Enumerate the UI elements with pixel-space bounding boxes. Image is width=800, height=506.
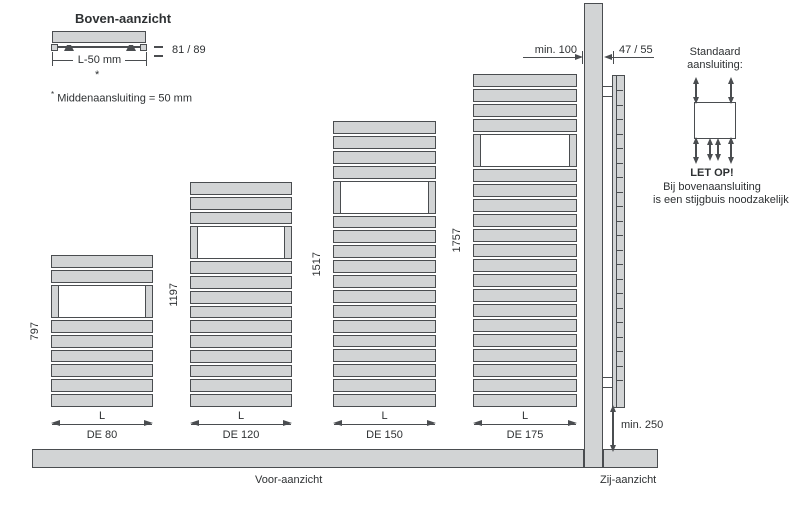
side-slat-tick xyxy=(617,293,623,294)
radiator-slat xyxy=(473,289,577,302)
side-slat-tick xyxy=(617,351,623,352)
radiator-slat xyxy=(190,182,292,195)
side-view-caption: Zij-aanzicht xyxy=(600,474,656,487)
wall xyxy=(584,3,603,468)
radiator-slat xyxy=(190,379,292,392)
radiator-de-80: 797 L DE 80 xyxy=(51,255,153,407)
radiator-slat xyxy=(190,306,292,319)
radiator-slat xyxy=(51,350,153,363)
side-slat-tick xyxy=(617,337,623,338)
mounting-bracket-icon xyxy=(51,44,58,51)
radiator-slat xyxy=(473,274,577,287)
towel-opening-gap xyxy=(198,227,284,258)
radiator-slat xyxy=(333,245,436,258)
towel-opening-gap xyxy=(59,286,145,317)
side-slat-tick xyxy=(617,206,623,207)
warning-line1: Bij bovenaansluiting xyxy=(653,181,771,194)
footnote: * Middenaansluiting = 50 mm xyxy=(51,90,192,105)
radiator-slat xyxy=(190,276,292,289)
radiator-slat xyxy=(51,335,153,348)
towel-opening xyxy=(51,285,153,318)
radiator-slat xyxy=(473,199,577,212)
radiator-slat xyxy=(333,364,436,377)
towel-opening-gap xyxy=(481,135,569,166)
towel-opening xyxy=(333,181,436,214)
side-post xyxy=(333,182,341,213)
radiator-slat xyxy=(190,197,292,210)
radiator-slat xyxy=(51,320,153,333)
flow-arrow-icon xyxy=(695,142,697,159)
width-dimension-arrow-icon xyxy=(191,424,291,425)
towel-opening xyxy=(190,226,292,259)
width-dimension-arrow-icon xyxy=(52,424,152,425)
dimension-tick xyxy=(582,51,583,64)
clamp-icon xyxy=(64,45,74,51)
radiator-slat xyxy=(473,379,577,392)
clamp-icon xyxy=(126,45,136,51)
side-slat-tick xyxy=(617,322,623,323)
height-dimension-label: 1517 xyxy=(311,252,323,276)
radiator-slat xyxy=(51,270,153,283)
side-slat-tick xyxy=(617,308,623,309)
width-dimension-label: L xyxy=(51,410,153,422)
radiator-slat xyxy=(51,394,153,407)
radiator-slat xyxy=(473,169,577,182)
radiator-slat xyxy=(333,379,436,392)
top-view-panel xyxy=(52,31,146,43)
radiator-slat xyxy=(333,290,436,303)
radiator-dimension-diagram: Boven-aanzicht L-50 mm * 81 / 89 * Midde… xyxy=(0,0,800,506)
radiator-slat xyxy=(333,335,436,348)
radiator-slat xyxy=(473,244,577,257)
radiator-slat xyxy=(51,364,153,377)
side-post xyxy=(190,227,198,258)
width-dimension-label: L xyxy=(333,410,436,422)
radiator-slat xyxy=(333,230,436,243)
radiator-slat xyxy=(333,305,436,318)
radiator-slat xyxy=(333,260,436,273)
width-dimension-arrow-icon xyxy=(474,424,576,425)
footnote-marker: * xyxy=(51,90,54,99)
radiator-de-150: 1517 L DE 150 xyxy=(333,121,436,407)
floor-clearance-label: min. 250 xyxy=(621,419,663,432)
side-slat-tick xyxy=(617,177,623,178)
depth-dimension-label: 47 / 55 xyxy=(619,44,653,57)
height-dimension: 797 xyxy=(25,255,45,407)
radiator-slat xyxy=(333,349,436,362)
side-post xyxy=(51,286,59,317)
side-slat-tick xyxy=(617,119,623,120)
radiator-slat xyxy=(473,184,577,197)
model-label: DE 175 xyxy=(473,429,577,441)
radiator-slat xyxy=(473,214,577,227)
side-slat-tick xyxy=(617,235,623,236)
radiator-slat xyxy=(190,291,292,304)
height-dimension-label: 1757 xyxy=(451,228,463,252)
mounting-bracket-icon xyxy=(140,44,147,51)
side-post xyxy=(428,182,436,213)
front-view-caption: Voor-aanzicht xyxy=(255,474,322,487)
side-slat-tick xyxy=(617,90,623,91)
top-view-title: Boven-aanzicht xyxy=(75,12,171,27)
warning-title: LET OP! xyxy=(653,167,771,180)
height-dimension: 1197 xyxy=(164,182,184,407)
side-post xyxy=(473,135,481,166)
height-dimension: 1517 xyxy=(307,121,327,407)
flow-arrow-icon xyxy=(717,143,719,156)
side-slat-tick xyxy=(617,105,623,106)
depth-dimension-tick xyxy=(154,46,163,48)
side-slat-tick xyxy=(617,264,623,265)
side-slat-tick xyxy=(617,380,623,381)
towel-opening-gap xyxy=(341,182,428,213)
flow-arrow-icon xyxy=(709,143,711,156)
radiator-slat xyxy=(190,335,292,348)
top-view-width-dimension: L-50 mm xyxy=(52,54,147,67)
side-slat-tick xyxy=(617,148,623,149)
side-slat-tick xyxy=(617,221,623,222)
side-slat-tick xyxy=(617,192,623,193)
radiator-schematic xyxy=(694,102,736,139)
radiator-slat xyxy=(473,349,577,362)
warning-line2: is een stijgbuis noodzakelijk xyxy=(653,194,771,207)
footnote-marker: * xyxy=(95,69,99,82)
wall-clearance-label: min. 100 xyxy=(519,44,577,57)
radiator-de-175: 1757 L DE 175 xyxy=(473,74,577,407)
wall-bracket-icon xyxy=(603,377,612,388)
model-label: DE 150 xyxy=(333,429,436,441)
radiator-slat xyxy=(333,121,436,134)
radiator-slat xyxy=(473,304,577,317)
dimension-line xyxy=(523,57,576,58)
top-view-depth-dimension: 81 / 89 xyxy=(172,44,206,57)
side-slat-tick xyxy=(617,366,623,367)
radiator-slat xyxy=(333,151,436,164)
width-dimension-label: L xyxy=(190,410,292,422)
radiator-slat xyxy=(473,364,577,377)
radiator-slat xyxy=(333,166,436,179)
radiator-slat xyxy=(333,136,436,149)
radiator-slat xyxy=(473,104,577,117)
side-slat-tick xyxy=(617,134,623,135)
depth-dimension-tick xyxy=(154,55,163,57)
towel-opening xyxy=(473,134,577,167)
radiator-slat xyxy=(473,319,577,332)
floor-front xyxy=(32,449,584,468)
radiator-slat xyxy=(333,394,436,407)
height-dimension-label: 797 xyxy=(29,322,41,340)
connection-heading-line1: Standaard xyxy=(665,46,765,59)
side-slat-tick xyxy=(617,279,623,280)
flow-arrow-icon xyxy=(730,142,732,159)
side-view-radiator xyxy=(612,75,625,408)
radiator-slat xyxy=(190,320,292,333)
wall-bracket-icon xyxy=(603,86,612,97)
radiator-slat xyxy=(333,275,436,288)
radiator-slat xyxy=(473,89,577,102)
flow-arrow-icon xyxy=(695,82,697,99)
height-dimension-label: 1197 xyxy=(168,283,180,307)
width-dimension-label: L xyxy=(473,410,577,422)
radiator-slat xyxy=(190,261,292,274)
radiator-slat xyxy=(473,394,577,407)
radiator-slat xyxy=(51,255,153,268)
flow-arrow-icon xyxy=(730,82,732,99)
radiator-slat xyxy=(473,259,577,272)
radiator-slat xyxy=(190,350,292,363)
radiator-slat xyxy=(473,229,577,242)
radiator-profile-line xyxy=(616,76,617,407)
radiator-slat xyxy=(473,74,577,87)
side-post xyxy=(284,227,292,258)
radiator-slat xyxy=(190,212,292,225)
radiator-slat xyxy=(473,334,577,347)
dimension-line xyxy=(611,57,654,58)
dimension-tick xyxy=(613,51,614,64)
radiator-slat xyxy=(473,119,577,132)
connection-heading-line2: aansluiting: xyxy=(665,59,765,72)
side-slat-tick xyxy=(617,163,623,164)
width-dimension-arrow-icon xyxy=(334,424,435,425)
side-post xyxy=(145,286,153,317)
model-label: DE 80 xyxy=(51,429,153,441)
radiator-slat xyxy=(333,320,436,333)
radiator-slat xyxy=(190,394,292,407)
floor-clearance-arrow-icon xyxy=(612,410,614,447)
model-label: DE 120 xyxy=(190,429,292,441)
side-slat-tick xyxy=(617,250,623,251)
radiator-slat xyxy=(51,379,153,392)
radiator-slat xyxy=(190,365,292,378)
side-post xyxy=(569,135,577,166)
radiator-slat xyxy=(333,216,436,229)
radiator-de-120: 1197 L DE 120 xyxy=(190,182,292,407)
footnote-text: Middenaansluiting = 50 mm xyxy=(57,93,192,105)
height-dimension: 1757 xyxy=(447,74,467,407)
